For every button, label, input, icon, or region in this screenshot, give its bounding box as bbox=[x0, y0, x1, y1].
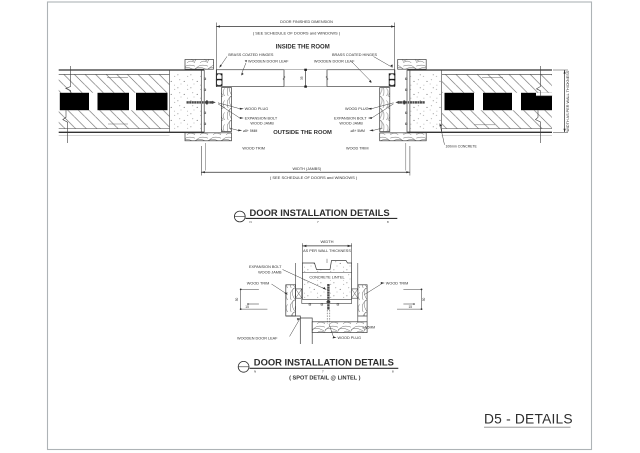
svg-text:WOOD PLUG: WOOD PLUG bbox=[338, 336, 362, 340]
svg-text:100mm CONCRETE: 100mm CONCRETE bbox=[446, 144, 478, 148]
svg-text:WOOD TRIM: WOOD TRIM bbox=[346, 146, 369, 150]
svg-text:WOOD JAMB: WOOD JAMB bbox=[339, 121, 363, 125]
svg-text:DOOR INSTALLATION DETAILS: DOOR INSTALLATION DETAILS bbox=[250, 207, 390, 218]
svg-text:WOODEN DOOR LEAF: WOODEN DOOR LEAF bbox=[314, 59, 355, 63]
svg-text:WIDTH (JAMBS): WIDTH (JAMBS) bbox=[292, 167, 321, 171]
svg-text:50: 50 bbox=[422, 298, 426, 302]
svg-text:INSIDE THE ROOM: INSIDE THE ROOM bbox=[276, 44, 330, 50]
svg-text:WOOD JAMB: WOOD JAMB bbox=[258, 270, 282, 274]
svg-text:WOOD JAMB: WOOD JAMB bbox=[250, 121, 274, 125]
svg-text:BRASS COATED HINGES: BRASS COATED HINGES bbox=[332, 53, 378, 57]
svg-text:DOOR INSTALLATION DETAILS: DOOR INSTALLATION DETAILS bbox=[254, 356, 394, 367]
svg-text:WIDTH AS PER WALL THICKNESS: WIDTH AS PER WALL THICKNESS bbox=[566, 70, 570, 132]
svg-text:⌀8+ 5MM: ⌀8+ 5MM bbox=[243, 129, 258, 133]
svg-text:WIDTH: WIDTH bbox=[320, 239, 333, 244]
svg-text:( SEE SCHEDULE OF DOORS and WI: ( SEE SCHEDULE OF DOORS and WINDOWS ) bbox=[270, 175, 358, 180]
svg-text:⌀A 5MM: ⌀A 5MM bbox=[363, 326, 376, 330]
svg-text:N: N bbox=[254, 370, 256, 374]
svg-text:⌀8+ 5MM: ⌀8+ 5MM bbox=[351, 129, 366, 133]
svg-text:N: N bbox=[250, 220, 252, 224]
svg-text:WOOD TRIM: WOOD TRIM bbox=[247, 281, 269, 285]
svg-text:CONCRETE LINTEL: CONCRETE LINTEL bbox=[309, 275, 344, 279]
svg-text:WOODEN DOOR LEAF: WOODEN DOOR LEAF bbox=[237, 337, 278, 341]
svg-text:D5 - DETAILS: D5 - DETAILS bbox=[484, 412, 573, 427]
svg-text:35: 35 bbox=[300, 76, 304, 80]
svg-text:( SPOT DETAIL @ LINTEL ): ( SPOT DETAIL @ LINTEL ) bbox=[289, 376, 360, 382]
svg-text:EXPANSION BOLT: EXPANSION BOLT bbox=[245, 116, 278, 120]
svg-text:( SEE SCHEDULE OF DOORS and WI: ( SEE SCHEDULE OF DOORS and WINDOWS ) bbox=[253, 30, 341, 35]
svg-text:DOOR FINISHED DIMENSION: DOOR FINISHED DIMENSION bbox=[280, 20, 333, 24]
svg-text:WOOD PLUG: WOOD PLUG bbox=[245, 107, 269, 111]
svg-text:AS PER WALL THICKNESS: AS PER WALL THICKNESS bbox=[303, 249, 351, 253]
svg-text:BRASS COATED HINGES: BRASS COATED HINGES bbox=[228, 53, 274, 57]
svg-text:WOODEN DOOR LEAF: WOODEN DOOR LEAF bbox=[248, 59, 289, 63]
svg-text:WOOD TRIM: WOOD TRIM bbox=[242, 146, 265, 150]
svg-text:EXPANSION BOLT: EXPANSION BOLT bbox=[249, 265, 282, 269]
svg-text:50: 50 bbox=[235, 298, 239, 302]
svg-text:OUTSIDE THE ROOM: OUTSIDE THE ROOM bbox=[273, 130, 332, 136]
svg-text:15: 15 bbox=[408, 305, 412, 309]
svg-text:WOOD TRIM: WOOD TRIM bbox=[386, 281, 409, 285]
svg-text:15: 15 bbox=[245, 305, 249, 309]
svg-text:EXPANSION BOLT: EXPANSION BOLT bbox=[334, 116, 367, 120]
svg-text:WOOD PLUG: WOOD PLUG bbox=[345, 107, 369, 111]
